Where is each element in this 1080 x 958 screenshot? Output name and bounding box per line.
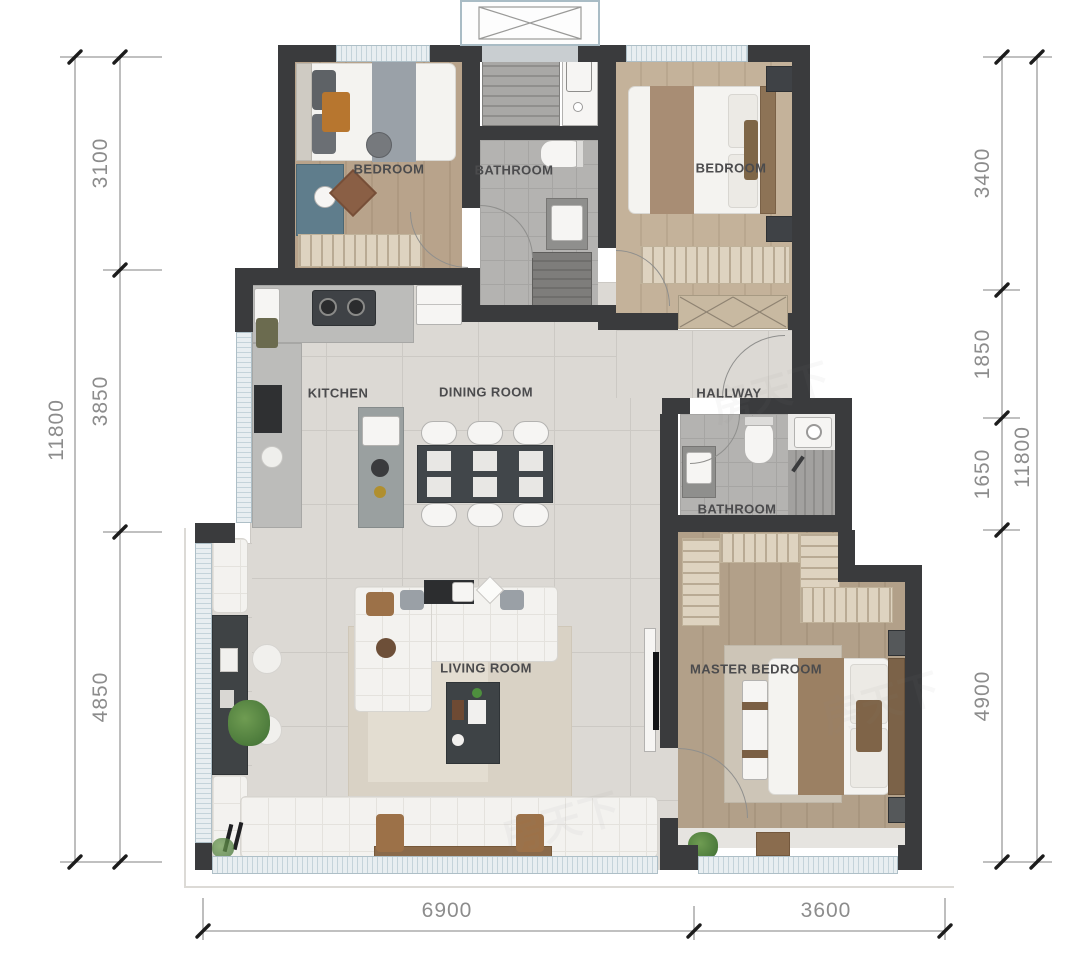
window bbox=[212, 856, 658, 874]
burner bbox=[319, 298, 337, 316]
bowl bbox=[374, 486, 386, 498]
tv bbox=[653, 652, 659, 730]
toilet bbox=[744, 420, 774, 464]
dim-right-4900: 4900 bbox=[971, 671, 995, 722]
wall-segment bbox=[835, 398, 852, 532]
wall-segment bbox=[462, 305, 616, 322]
coffee-machine bbox=[254, 385, 282, 433]
plate bbox=[261, 446, 283, 468]
cup bbox=[452, 734, 464, 746]
pillow bbox=[500, 590, 524, 610]
utility-drain bbox=[573, 102, 583, 112]
dim-right-1650: 1650 bbox=[971, 449, 995, 500]
window bbox=[698, 856, 898, 874]
wall-segment bbox=[195, 843, 212, 870]
toilet-tank bbox=[576, 140, 584, 168]
jar-set bbox=[256, 318, 278, 348]
bench-module bbox=[212, 538, 248, 613]
dim-left-total: 11800 bbox=[45, 399, 69, 461]
bed-headboard bbox=[296, 63, 312, 161]
room-label-bedroom-1: BEDROOM bbox=[354, 162, 425, 177]
wall-segment bbox=[598, 313, 678, 330]
window bbox=[336, 45, 430, 62]
pillow bbox=[400, 590, 424, 610]
burner bbox=[347, 298, 365, 316]
corner-plant bbox=[212, 838, 234, 858]
wall-segment bbox=[678, 515, 852, 532]
window bbox=[195, 543, 212, 843]
wardrobe bbox=[800, 587, 893, 623]
dining-chair bbox=[513, 503, 549, 527]
bench-strap bbox=[742, 702, 768, 710]
room-label-bathroom-1: BATHROOM bbox=[475, 163, 554, 178]
dining-chair bbox=[467, 421, 503, 445]
room-label-bathroom-2: BATHROOM bbox=[698, 502, 777, 517]
pillow bbox=[366, 592, 394, 616]
wardrobe bbox=[298, 234, 422, 267]
picture-frame bbox=[220, 648, 238, 672]
round-side-table bbox=[252, 644, 282, 674]
throw-blanket bbox=[322, 92, 350, 132]
kitchen-counter-left bbox=[252, 343, 302, 528]
bed-runner bbox=[650, 86, 694, 214]
vanity-sink bbox=[551, 205, 583, 241]
wall-segment bbox=[898, 845, 922, 870]
dim-left-3850: 3850 bbox=[89, 376, 113, 427]
side-table bbox=[376, 638, 396, 658]
wall-segment bbox=[235, 278, 253, 332]
placemat bbox=[519, 451, 543, 471]
wardrobe bbox=[682, 538, 720, 626]
wardrobe bbox=[720, 533, 800, 563]
window bbox=[626, 45, 748, 62]
floor-plan-canvas: BEDROOM BATHROOM BEDROOM KITCHEN DINING … bbox=[0, 0, 1080, 958]
wall-segment bbox=[788, 313, 810, 330]
wall-segment bbox=[278, 45, 295, 285]
wall-segment bbox=[462, 126, 616, 140]
wall-segment bbox=[598, 45, 616, 248]
utility-sink bbox=[566, 60, 592, 92]
wall-segment bbox=[838, 565, 922, 582]
coffee-table-book bbox=[468, 700, 486, 724]
bed-headboard bbox=[760, 86, 776, 214]
island-sink bbox=[362, 416, 400, 446]
room-label-living-room: LIVING ROOM bbox=[440, 661, 532, 676]
picture-frame bbox=[220, 690, 234, 708]
stairwell bbox=[482, 56, 560, 126]
dim-right-total: 11800 bbox=[1011, 426, 1035, 488]
speaker bbox=[452, 582, 474, 602]
wall-segment bbox=[660, 845, 698, 870]
placemat bbox=[427, 477, 451, 497]
dim-bottom-6900: 6900 bbox=[422, 899, 473, 923]
dim-left-4850: 4850 bbox=[89, 672, 113, 723]
wall-segment bbox=[235, 268, 480, 285]
placemat bbox=[519, 477, 543, 497]
bed-bench bbox=[742, 680, 768, 780]
shower-stall bbox=[532, 252, 592, 312]
room-label-kitchen: KITCHEN bbox=[308, 386, 369, 401]
wall-segment bbox=[662, 398, 690, 414]
dining-chair bbox=[513, 421, 549, 445]
room-label-dining-room: DINING ROOM bbox=[439, 385, 533, 400]
washer-drum bbox=[806, 424, 822, 440]
coffee-table-tray bbox=[452, 700, 464, 720]
room-label-bedroom-2: BEDROOM bbox=[696, 161, 767, 176]
dining-chair bbox=[421, 503, 457, 527]
kettle bbox=[371, 459, 389, 477]
fridge bbox=[416, 285, 462, 325]
dining-chair bbox=[421, 421, 457, 445]
elevator-shaft bbox=[460, 0, 600, 46]
placemat bbox=[473, 477, 497, 497]
room-label-master-bedroom: MASTER BEDROOM bbox=[690, 662, 822, 677]
door-mat bbox=[756, 832, 790, 856]
closet-x-icon bbox=[679, 296, 787, 328]
plant bbox=[228, 700, 270, 746]
decor-plant-dot bbox=[472, 688, 482, 698]
fridge-seam bbox=[416, 304, 462, 305]
dim-bottom-3600: 3600 bbox=[801, 899, 852, 923]
pillow bbox=[376, 814, 404, 852]
hall-closet bbox=[678, 295, 788, 329]
ottoman bbox=[366, 132, 392, 158]
floor-shower-zone bbox=[788, 450, 835, 515]
placemat bbox=[473, 451, 497, 471]
wall-segment bbox=[792, 45, 810, 330]
dim-right-1850: 1850 bbox=[971, 329, 995, 380]
placemat bbox=[427, 451, 451, 471]
dim-right-3400: 3400 bbox=[971, 148, 995, 199]
wall-segment bbox=[660, 414, 678, 748]
bench-strap bbox=[742, 750, 768, 758]
dim-left-3100: 3100 bbox=[89, 138, 113, 189]
window bbox=[236, 332, 252, 523]
wall-segment bbox=[905, 582, 922, 870]
dining-chair bbox=[467, 503, 503, 527]
elevator-x-icon bbox=[462, 2, 598, 44]
